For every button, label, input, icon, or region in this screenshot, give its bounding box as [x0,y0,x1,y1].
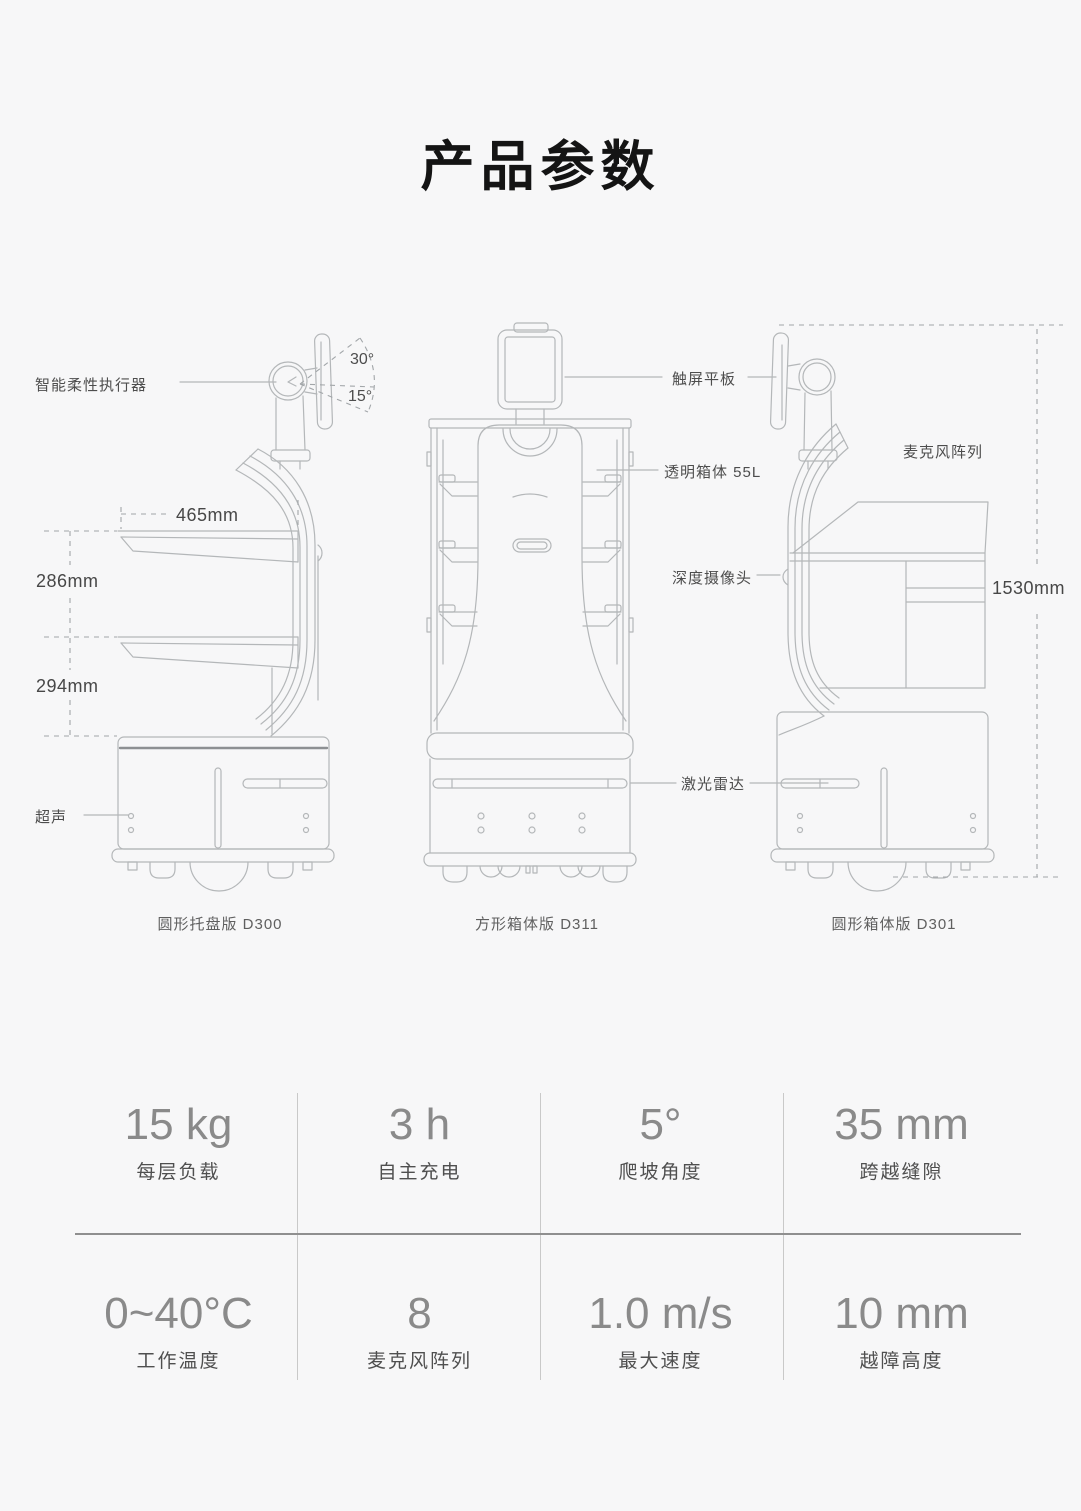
spec-value: 15 kg [125,1103,233,1147]
d311-left-shelves [439,475,477,626]
caption-d300: 圆形托盘版 D300 [125,913,315,934]
total-height-dimension: 1530mm [992,578,1065,599]
touchscreen-label: 触屏平板 [672,368,736,389]
d311-right-shelves [583,475,621,626]
spec-cell-gap: 35 mm 跨越缝隙 [781,1103,1022,1182]
spec-label: 越障高度 [859,1352,943,1371]
spec-row-1: 15 kg 每层负载 3 h 自主充电 5° 爬坡角度 35 mm 跨越缝隙 [58,1103,1022,1182]
tray-gap-1-dimension: 286mm [36,571,99,592]
spec-cell-charging: 3 h 自主充电 [299,1103,540,1182]
robot-d300-drawing [44,334,374,891]
tray-gap-2-dimension: 294mm [36,676,99,697]
tilt-angle-up-label: 30° [350,351,374,369]
ultrasonic-label: 超声 [35,806,67,827]
spec-label: 每层负载 [136,1163,220,1182]
spec-label: 麦克风阵列 [367,1352,472,1371]
lidar-label: 激光雷达 [681,773,745,794]
d301-height-dimension [779,325,1063,877]
spec-value: 10 mm [834,1292,968,1336]
depth-camera-label: 深度摄像头 [672,567,752,588]
actuator-label: 智能柔性执行器 [35,374,147,395]
spec-value: 3 h [389,1103,450,1147]
caption-d311: 方形箱体版 D311 [442,913,632,934]
spec-cell-speed: 1.0 m/s 最大速度 [540,1292,781,1371]
robot-d301-drawing [770,325,1063,891]
spec-divider-horizontal [75,1233,1021,1235]
spec-value: 8 [407,1292,431,1336]
caption-d301: 圆形箱体版 D301 [799,913,989,934]
spec-row-2: 0~40°C 工作温度 8 麦克风阵列 1.0 m/s 最大速度 10 mm 越… [58,1292,1022,1371]
spec-value: 35 mm [834,1103,968,1147]
spec-cell-obstacle: 10 mm 越障高度 [781,1292,1022,1371]
spec-cell-temperature: 0~40°C 工作温度 [58,1292,299,1371]
spec-cell-payload: 15 kg 每层负载 [58,1103,299,1182]
spec-cell-microphones: 8 麦克风阵列 [299,1292,540,1371]
transparent-box-label: 透明箱体 55L [664,461,761,482]
spec-label: 爬坡角度 [618,1163,702,1182]
tilt-angle-down-label: 15° [348,388,372,406]
spec-label: 工作温度 [136,1352,220,1371]
robot-d311-drawing [424,323,828,882]
spec-value: 5° [639,1103,681,1147]
spec-sheet-page: 产品参数 [0,0,1081,1511]
spec-label: 自主充电 [377,1163,461,1182]
spec-label: 最大速度 [618,1352,702,1371]
spec-value: 1.0 m/s [588,1292,732,1336]
spec-value: 0~40°C [104,1292,252,1336]
d300-dimension-lines [44,500,298,736]
spec-cell-slope: 5° 爬坡角度 [540,1103,781,1182]
tray-width-dimension: 465mm [176,505,239,526]
mic-array-label: 麦克风阵列 [903,441,983,462]
spec-label: 跨越缝隙 [859,1163,943,1182]
